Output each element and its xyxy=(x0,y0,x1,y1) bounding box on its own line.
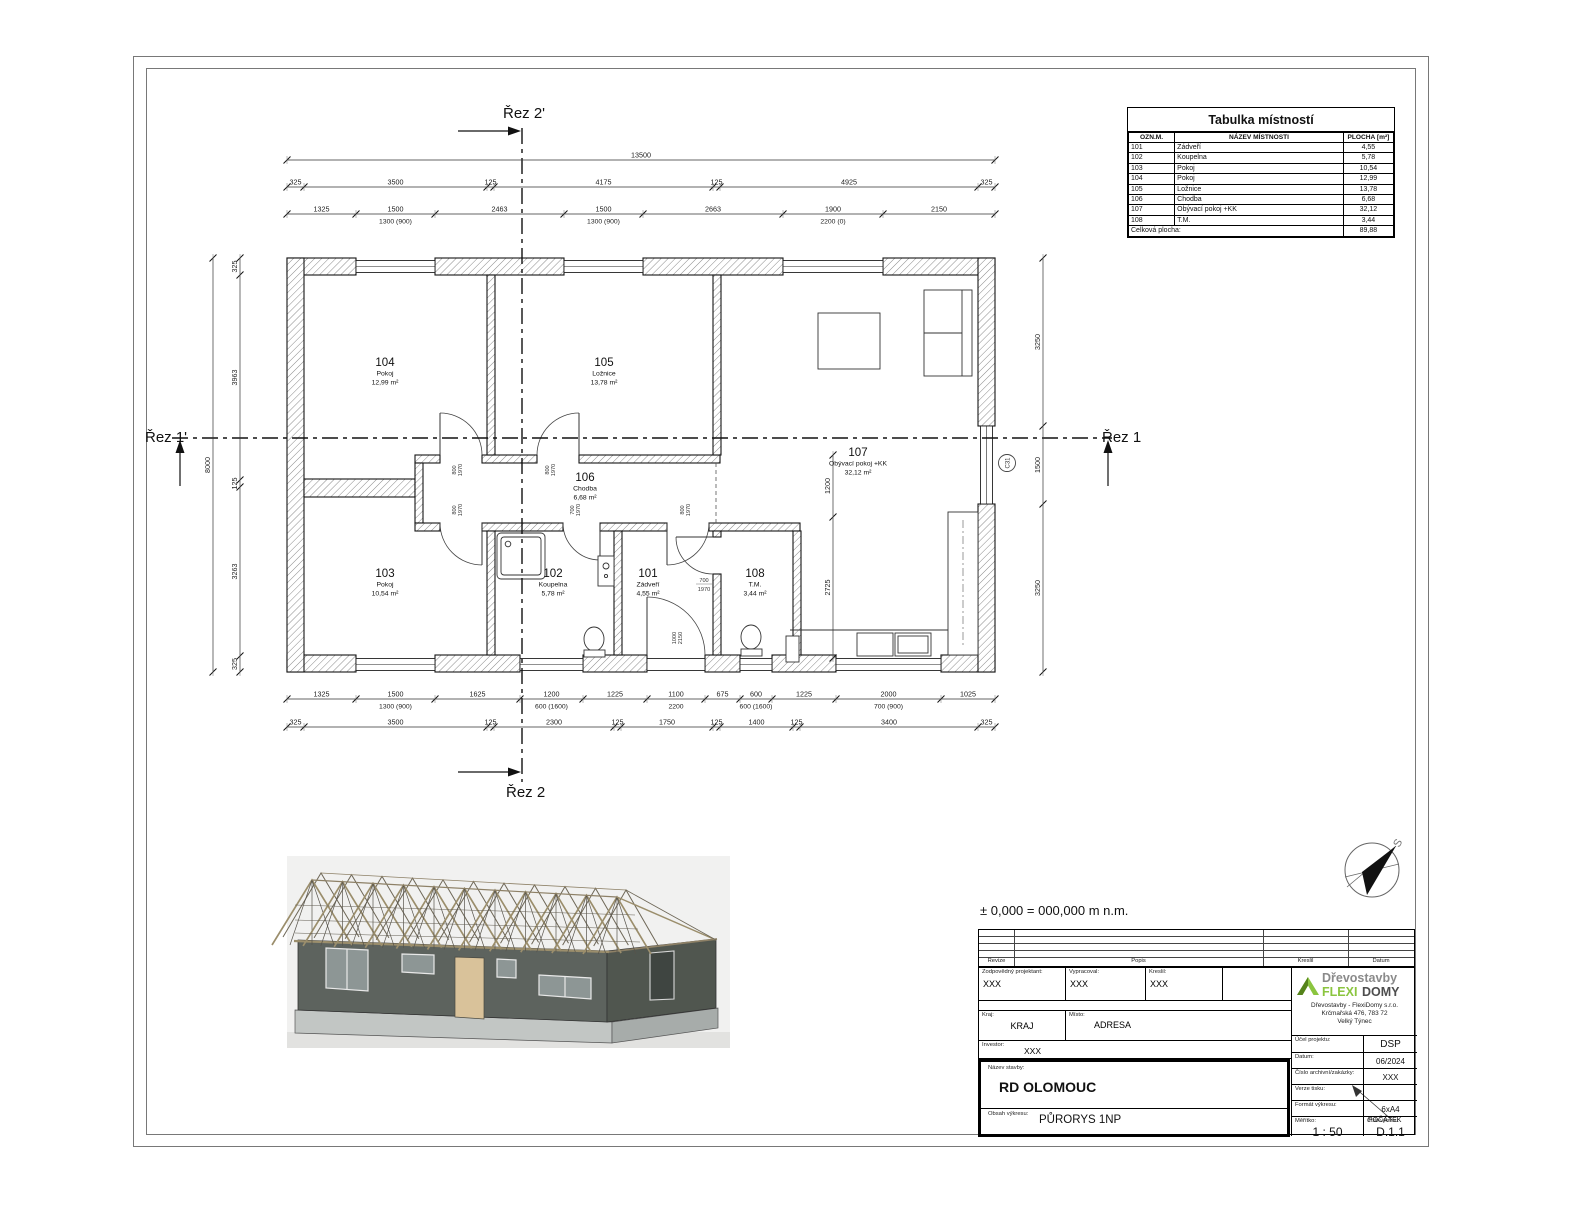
ucel-label: Účel projektu: xyxy=(1292,1036,1363,1043)
cislo-vykresu-label: Číslo výkresu: xyxy=(1364,1117,1417,1124)
kraj-value: KRAJ xyxy=(979,1018,1065,1031)
dimension-label: 325 xyxy=(290,178,302,187)
dimension-label: 1225 xyxy=(796,690,812,699)
room-number: 102 xyxy=(543,568,562,580)
room-area: 32,12 m² xyxy=(845,470,873,477)
room-table-body: 101Zádveří4,55102Koupelna5,78103Pokoj10,… xyxy=(1129,143,1394,226)
room-name: T.M. xyxy=(749,582,762,589)
dimension-label: 325 xyxy=(230,261,239,273)
dimension-label: 1200 xyxy=(823,478,832,494)
dimension-label: 1200 xyxy=(544,690,560,699)
dimension-sublabel: 600 (1600) xyxy=(740,704,773,711)
cislo-arch-value: XXX xyxy=(1364,1069,1417,1082)
section-label-rez1-left: Řez 1' xyxy=(145,429,187,446)
section-label-rez2-top: Řez 2' xyxy=(503,105,545,122)
dimension-label: 125 xyxy=(711,178,723,187)
rev-header-datum: Datum xyxy=(1348,958,1414,964)
north-compass: S xyxy=(1345,837,1405,897)
floorplan-doors xyxy=(440,413,713,655)
table-cell: Zádveří xyxy=(1175,143,1344,153)
zodp-label: Zodpovědný projektant: xyxy=(979,968,1065,975)
table-cell: T.M. xyxy=(1175,215,1344,225)
kraj-label: Kraj: xyxy=(979,1011,1065,1018)
door-size-label: 1970 xyxy=(576,504,582,516)
house-3d-render xyxy=(272,856,730,1048)
floorplan-fixtures xyxy=(497,290,978,662)
table-cell: Koupelna xyxy=(1175,153,1344,163)
table-cell: 5,78 xyxy=(1343,153,1393,163)
dimension-label: 1400 xyxy=(749,718,765,727)
dimension-label: 4175 xyxy=(596,178,612,187)
table-cell: 105 xyxy=(1129,184,1175,194)
table-cell: 6,68 xyxy=(1343,195,1393,205)
table-row: 106Chodba6,68 xyxy=(1129,195,1394,205)
table-cell: Pokoj xyxy=(1175,174,1344,184)
dimension-label: 125 xyxy=(230,478,239,490)
north-needle xyxy=(1362,846,1396,895)
table-cell: 10,54 xyxy=(1343,163,1393,173)
rev-header-kreslil: Kreslil xyxy=(1263,958,1348,964)
table-cell: 32,12 xyxy=(1343,205,1393,215)
dimension-label: 1625 xyxy=(470,690,486,699)
kreslil-label: Kreslil: xyxy=(1146,968,1222,975)
room-area: 3,44 m² xyxy=(743,591,767,598)
component-marker: C31 xyxy=(999,455,1016,472)
room-area: 6,68 m² xyxy=(573,495,597,502)
company-address-line1: Dřevostavby - FlexiDomy s.r.o. xyxy=(1292,1002,1417,1010)
dimension-label: 1500 xyxy=(388,205,404,214)
verze-value xyxy=(1364,1085,1417,1089)
room-number: 105 xyxy=(594,357,613,369)
dimension-label: 1500 xyxy=(596,205,612,214)
table-cell: 13,78 xyxy=(1343,184,1393,194)
door-size-label: 1970 xyxy=(686,504,692,516)
format-value: 6xA4 xyxy=(1364,1101,1417,1114)
dimension-label: 2725 xyxy=(823,580,832,596)
door-size-label: 1970 xyxy=(698,587,710,593)
room-name: Pokoj xyxy=(376,582,393,589)
dimension-label: 2663 xyxy=(705,205,721,214)
sofa xyxy=(924,290,972,376)
dimension-label: 2150 xyxy=(931,205,947,214)
dimension-label: 3500 xyxy=(388,718,404,727)
col-header-plocha: PLOCHA [m²] xyxy=(1343,133,1393,143)
toilet-tm xyxy=(741,625,799,662)
room-number: 107 xyxy=(848,447,867,459)
rev-header-popis: Popis xyxy=(1014,958,1263,964)
dimension-label: 2463 xyxy=(492,205,508,214)
company-logo: Dřevostavby FLEXI DOMY xyxy=(1295,970,1415,1000)
dimension-sublabel: 2200 xyxy=(668,704,683,711)
investor-label: Investor: xyxy=(979,1041,1004,1048)
room-area: 12,99 m² xyxy=(372,380,400,387)
logo-text-prefix: Dřevostavby xyxy=(1322,971,1397,985)
dimension-label: 1500 xyxy=(1033,457,1042,473)
component-marker-label: C31 xyxy=(1006,457,1012,469)
col-header-nazev: NÁZEV MÍSTNOSTI xyxy=(1175,133,1344,143)
table-cell: 101 xyxy=(1129,143,1175,153)
room-name: Chodba xyxy=(573,486,597,493)
ucel-value: DSP xyxy=(1364,1036,1417,1050)
company-address-line3: Velký Týnec xyxy=(1292,1018,1417,1026)
table-row: 101Zádveří4,55 xyxy=(1129,143,1394,153)
verze-label: Verze tisku: xyxy=(1292,1085,1363,1092)
room-number: 101 xyxy=(638,568,657,580)
door-size-label: 1970 xyxy=(458,504,464,516)
dimension-label: 1325 xyxy=(314,205,330,214)
dimension-sublabel: 1300 (900) xyxy=(379,704,412,711)
table-cell: 104 xyxy=(1129,174,1175,184)
room-table-total-row: Celková plocha: 89,88 xyxy=(1129,226,1394,236)
cislo-vykresu-value: D.1.1 xyxy=(1364,1124,1417,1139)
room-number: 108 xyxy=(745,568,764,580)
room-labels: 104Pokoj12,99 m²105Ložnice13,78 m²107Obý… xyxy=(372,357,888,598)
investor-value: XXX xyxy=(979,1041,1291,1056)
datum-label: Datum: xyxy=(1292,1053,1363,1060)
table-cell: 4,55 xyxy=(1343,143,1393,153)
dimension-sublabel: 600 (1600) xyxy=(535,704,568,711)
table-cell: 103 xyxy=(1129,163,1175,173)
section-lines xyxy=(172,127,1113,783)
dimension-label: 3500 xyxy=(388,178,404,187)
room-name: Ložnice xyxy=(592,371,616,378)
section-label-rez2-bottom: Řez 2 xyxy=(506,784,545,801)
dimension-label: 1750 xyxy=(659,718,675,727)
entry-door xyxy=(455,957,484,1019)
table-cell: 108 xyxy=(1129,215,1175,225)
title-block: Zodpovědný projektant: XXX Vypracoval: X… xyxy=(978,967,1415,1135)
dimension-label: 1500 xyxy=(388,690,404,699)
section-arrow-top xyxy=(508,127,521,136)
dimension-label: 325 xyxy=(290,718,302,727)
table-cell: Ložnice xyxy=(1175,184,1344,194)
nazev-value: RD OLOMOUC xyxy=(981,1071,1287,1095)
format-label: Formát výkresu: xyxy=(1292,1101,1363,1108)
misto-value: ADRESA xyxy=(1066,1011,1291,1030)
table-row: 108T.M.3,44 xyxy=(1129,215,1394,225)
table-cell: Pokoj xyxy=(1175,163,1344,173)
dimension-label: 8000 xyxy=(203,457,212,473)
door-size-label: 1970 xyxy=(551,464,557,476)
floorplan-walls xyxy=(287,258,995,672)
total-value: 89,88 xyxy=(1343,226,1393,236)
dimension-sublabel: 1300 (900) xyxy=(379,219,412,226)
north-label: S xyxy=(1391,837,1405,849)
dimension-sublabel: 1300 (900) xyxy=(587,219,620,226)
room-area: 13,78 m² xyxy=(591,380,619,387)
table-cell: 106 xyxy=(1129,195,1175,205)
logo-text-domy: DOMY xyxy=(1362,985,1400,999)
section-arrow-bottom xyxy=(508,768,521,777)
obsah-value: PŮRORYS 1NP xyxy=(1039,1114,1121,1126)
room-number: 103 xyxy=(375,568,394,580)
room-name: Koupelna xyxy=(539,582,568,589)
zodp-value: XXX xyxy=(979,975,1065,989)
dimension-label: 2300 xyxy=(546,718,562,727)
room-name: Obývací pokoj +KK xyxy=(829,461,887,468)
room-number: 106 xyxy=(575,472,594,484)
misto-label: Místo: xyxy=(1066,1011,1085,1018)
room-area: 10,54 m² xyxy=(372,591,400,598)
room-table-header-row: OZN.M. NÁZEV MÍSTNOSTI PLOCHA [m²] xyxy=(1129,133,1394,143)
dimension-label: 13500 xyxy=(631,151,651,160)
meritko-label: Měřítko: xyxy=(1292,1117,1363,1124)
dimension-label: 3250 xyxy=(1033,580,1042,596)
dimension-label: 125 xyxy=(485,178,497,187)
kreslil-value: XXX xyxy=(1146,975,1222,989)
table-row: 105Ložnice13,78 xyxy=(1129,184,1394,194)
room-number: 104 xyxy=(375,357,395,369)
dimension-sublabel: 2200 (0) xyxy=(820,219,845,226)
datum-value: 06/2024 xyxy=(1364,1053,1417,1066)
drawing-sheet: C31 S POČÁTEK xyxy=(0,0,1584,1224)
dimension-label: 3963 xyxy=(230,370,239,386)
door-size-label: 1970 xyxy=(458,464,464,476)
vypracoval-value: XXX xyxy=(1066,975,1145,989)
dimension-label: 600 xyxy=(750,690,762,699)
kitchen-counter xyxy=(790,512,978,656)
table-row: 102Koupelna5,78 xyxy=(1129,153,1394,163)
revision-table: Revize Popis Kreslil Datum xyxy=(978,929,1415,967)
table-row: 104Pokoj12,99 xyxy=(1129,174,1394,184)
room-area: 4,55 m² xyxy=(636,591,660,598)
meritko-value: 1 : 50 xyxy=(1292,1124,1363,1139)
dimension-label: 125 xyxy=(711,718,723,727)
table-cell: 102 xyxy=(1129,153,1175,163)
nazev-label: Název stavby: xyxy=(981,1062,1287,1071)
door-size-label: 700 xyxy=(699,578,708,584)
table-cell: Obývací pokoj +KK xyxy=(1175,205,1344,215)
washbasin xyxy=(598,556,614,586)
dimension-label: 125 xyxy=(612,718,624,727)
dimension-label: 3250 xyxy=(1033,334,1042,350)
room-name: Zádveří xyxy=(636,582,659,589)
obsah-label: Obsah výkresu: xyxy=(985,1110,1028,1117)
table-cell: 12,99 xyxy=(1343,174,1393,184)
dimension-label: 1100 xyxy=(668,690,683,699)
door-size-label: 2150 xyxy=(678,632,684,644)
room-table: Tabulka místností OZN.M. NÁZEV MÍSTNOSTI… xyxy=(1127,107,1395,238)
table-cell: 3,44 xyxy=(1343,215,1393,225)
shower xyxy=(497,533,545,579)
dimension-label: 325 xyxy=(230,658,239,670)
table-cell: Chodba xyxy=(1175,195,1344,205)
room-area: 5,78 m² xyxy=(541,591,565,598)
toilet-bathroom xyxy=(584,627,605,657)
table xyxy=(818,313,880,369)
vypracoval-label: Vypracoval: xyxy=(1066,968,1145,975)
rev-header-revize: Revize xyxy=(979,958,1014,964)
dimension-label: 125 xyxy=(485,718,497,727)
col-header-ozn: OZN.M. xyxy=(1129,133,1175,143)
logo-text-flexi: FLEXI xyxy=(1322,985,1357,999)
dimension-label: 3263 xyxy=(230,564,239,580)
dimension-label: 1225 xyxy=(607,690,623,699)
dimension-label: 3400 xyxy=(881,718,897,727)
dimension-label: 1025 xyxy=(960,690,976,699)
table-row: 107Obývací pokoj +KK32,12 xyxy=(1129,205,1394,215)
dimension-label: 1325 xyxy=(314,690,330,699)
dimension-label: 325 xyxy=(981,718,993,727)
company-address-line2: Krčmařská 476, 783 72 xyxy=(1292,1010,1417,1018)
dimension-sublabel: 700 (900) xyxy=(874,704,903,711)
dimension-label: 1900 xyxy=(825,205,841,214)
dimension-label: 2000 xyxy=(881,690,897,699)
section-label-rez1-right: Řez 1 xyxy=(1102,429,1141,446)
side-window xyxy=(650,951,674,1000)
dimension-label: 675 xyxy=(717,690,729,699)
elevation-note: ± 0,000 = 000,000 m n.m. xyxy=(980,903,1128,918)
cislo-arch-label: Číslo archivní/zakázky: xyxy=(1292,1069,1363,1076)
room-table-title: Tabulka místností xyxy=(1128,108,1394,132)
table-row: 103Pokoj10,54 xyxy=(1129,163,1394,173)
dimension-label: 125 xyxy=(791,718,803,727)
dimension-label: 325 xyxy=(981,178,993,187)
dimension-label: 4925 xyxy=(841,178,857,187)
table-cell: 107 xyxy=(1129,205,1175,215)
total-label: Celková plocha: xyxy=(1129,226,1344,236)
room-name: Pokoj xyxy=(376,371,393,378)
